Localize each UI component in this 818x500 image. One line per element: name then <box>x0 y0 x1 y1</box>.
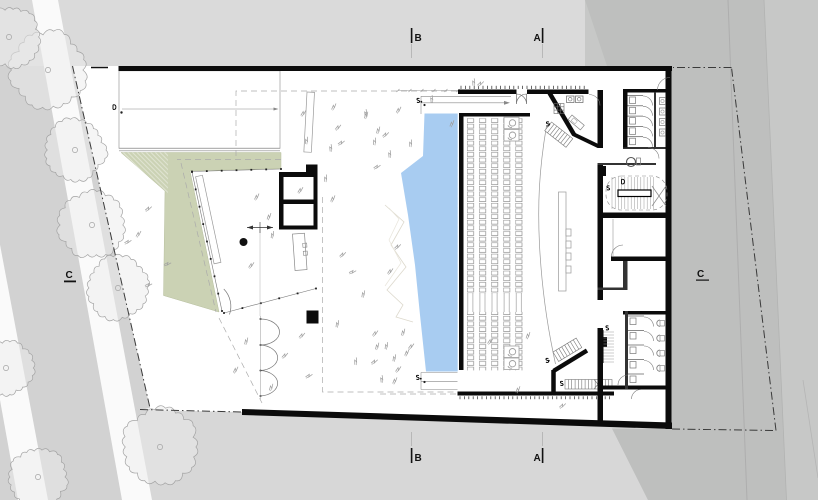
svg-text:C: C <box>697 269 704 280</box>
svg-text:A: A <box>534 33 541 44</box>
svg-text:B: B <box>415 33 422 44</box>
svg-text:C: C <box>66 270 73 281</box>
svg-text:B: B <box>415 453 422 464</box>
svg-text:A: A <box>534 453 541 464</box>
